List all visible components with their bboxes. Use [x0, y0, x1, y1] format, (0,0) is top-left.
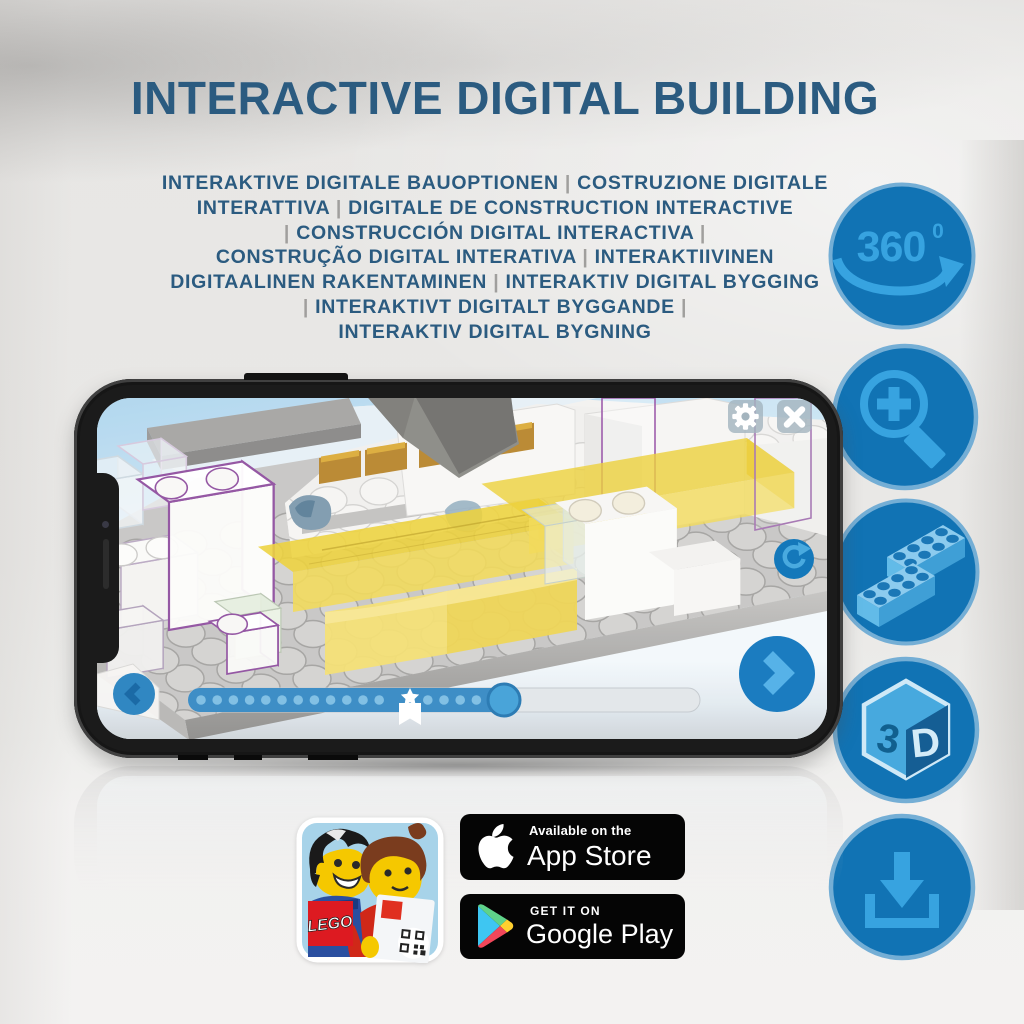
- svg-text:0: 0: [932, 220, 944, 243]
- svg-text:D: D: [909, 720, 942, 767]
- svg-text:360: 360: [857, 223, 926, 271]
